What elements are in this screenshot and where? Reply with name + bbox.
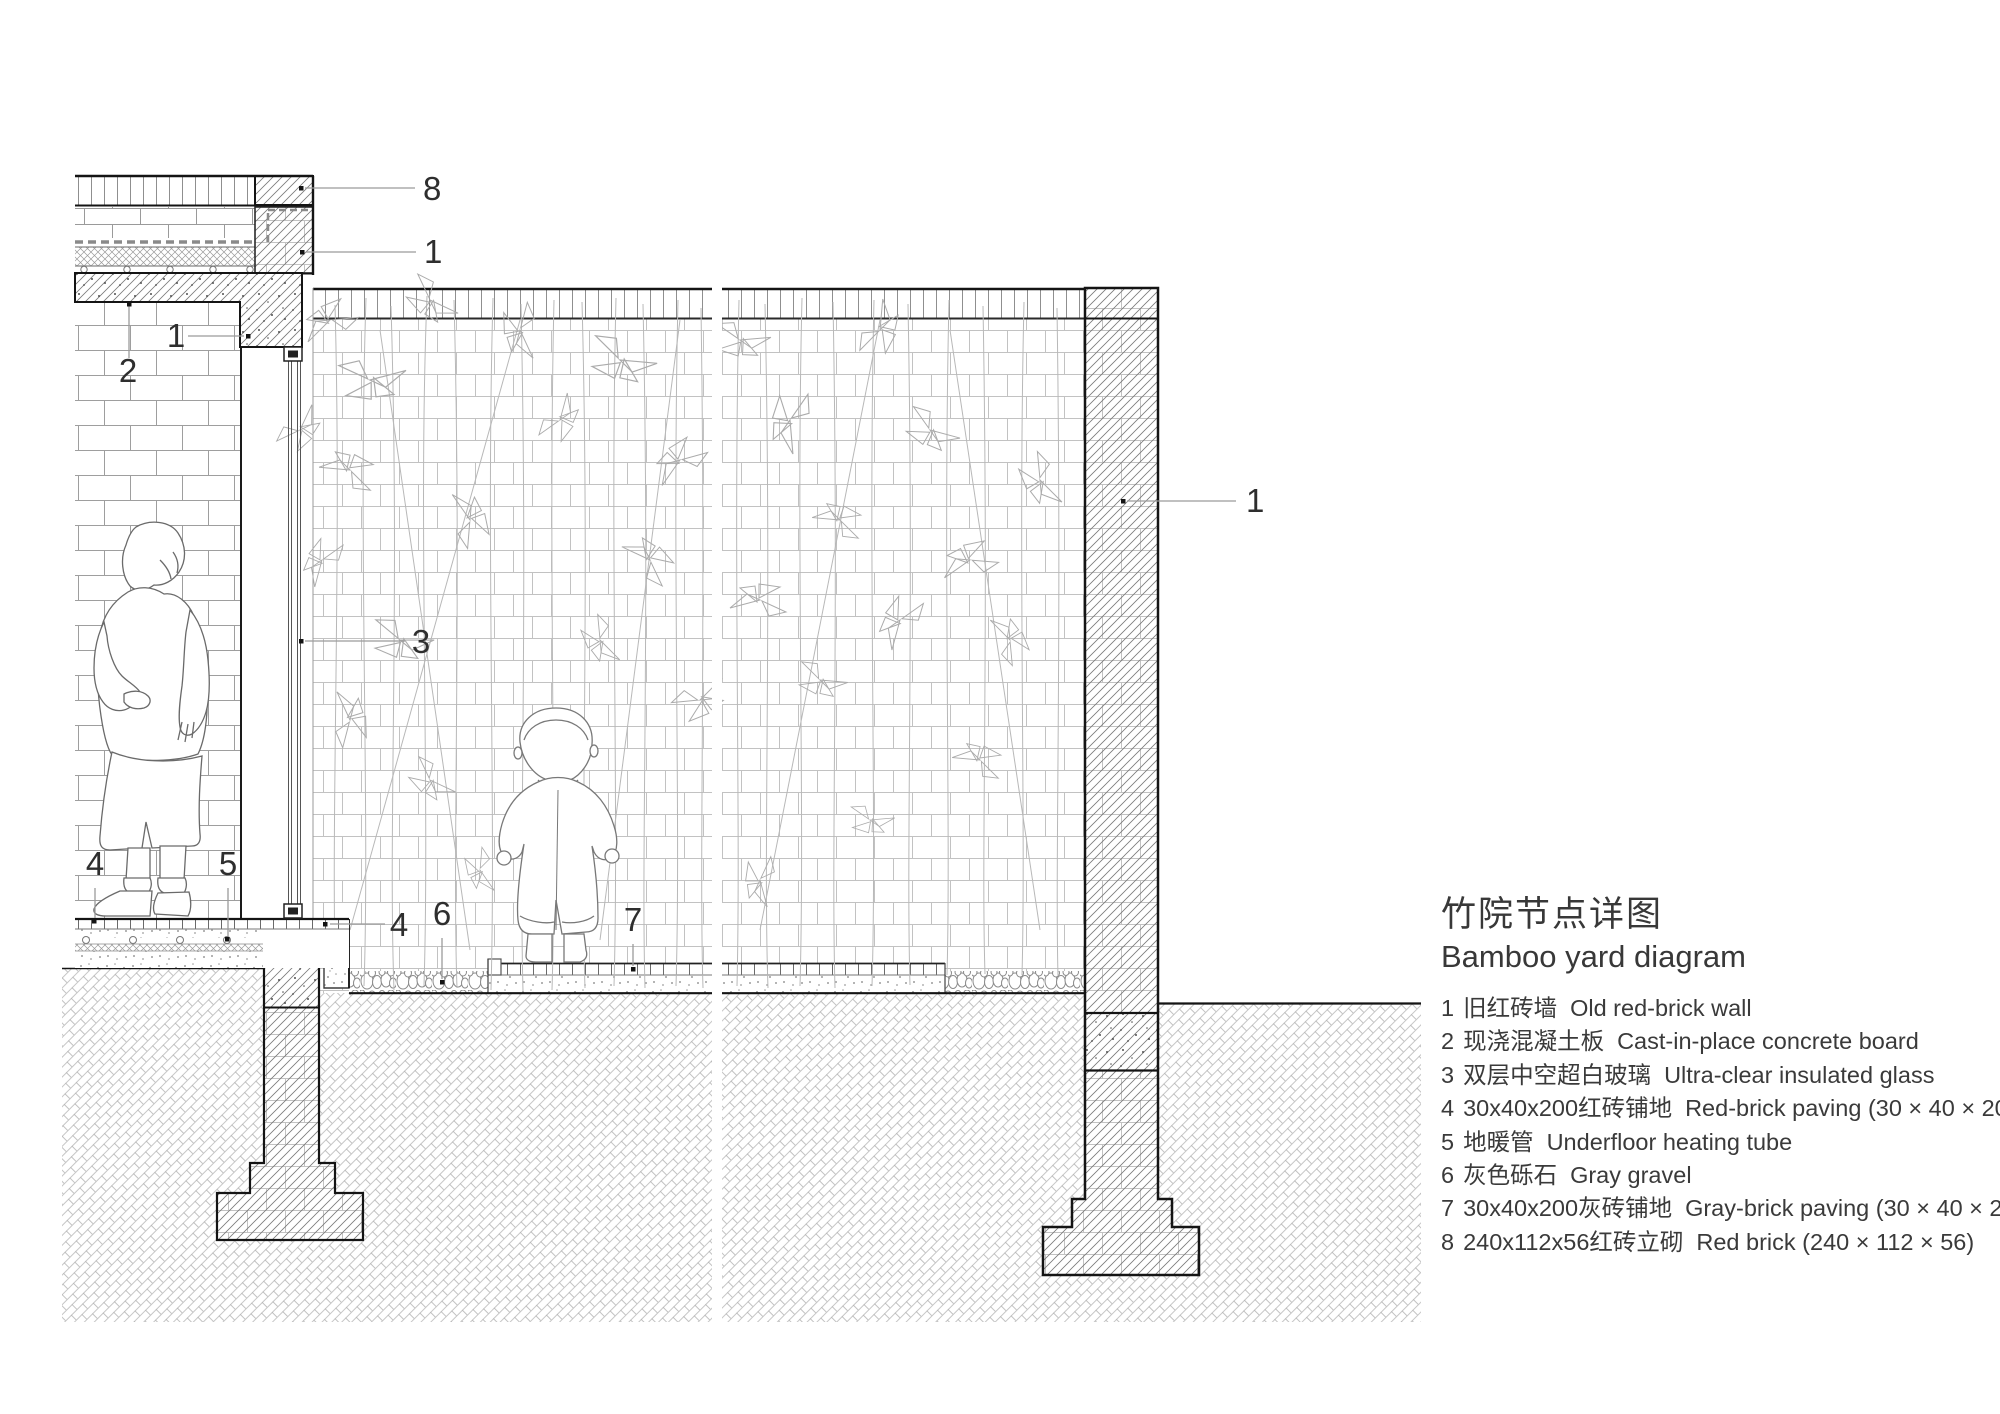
callout-6-label: 6	[433, 895, 451, 932]
legend-item-8: 8240x112x56红砖立砌Red brick (240 × 112 × 56…	[1441, 1226, 2000, 1259]
sheet: 8 1 2 1 3 4 5 4 6 7 1 竹院节点详图 Bamboo yard…	[0, 0, 2000, 1414]
page-title-en: Bamboo yard diagram	[1441, 937, 2000, 977]
legend: 1旧红砖墙Old red-brick wall 2现浇混凝土板Cast-in-p…	[1441, 992, 2000, 1259]
callout-5-label: 5	[219, 845, 237, 882]
callout-1-beam-label: 1	[167, 317, 185, 354]
callout-1-roof-label: 1	[424, 233, 442, 270]
callout-2-label: 2	[119, 352, 137, 389]
sheet-break	[712, 283, 722, 1330]
legend-item-3: 3双层中空超白玻璃Ultra-clear insulated glass	[1441, 1059, 2000, 1092]
glass-unit	[284, 347, 302, 918]
callout-7-label: 7	[624, 901, 642, 938]
callout-4-floor-label: 4	[86, 845, 104, 882]
old-wall-section-top	[255, 207, 313, 273]
interior-floor-assembly	[75, 919, 349, 968]
callout-3-label: 3	[412, 623, 430, 660]
title-block: 竹院节点详图 Bamboo yard diagram 1旧红砖墙Old red-…	[1441, 893, 2000, 1259]
legend-item-2: 2现浇混凝土板Cast-in-place concrete board	[1441, 1025, 2000, 1058]
coping-brick-8	[255, 176, 313, 205]
legend-item-6: 6灰色砾石Gray gravel	[1441, 1159, 2000, 1192]
callout-8-label: 8	[423, 170, 441, 207]
legend-item-5: 5地暖管Underfloor heating tube	[1441, 1126, 2000, 1159]
callout-4-edge-label: 4	[390, 906, 408, 943]
legend-item-1: 1旧红砖墙Old red-brick wall	[1441, 992, 2000, 1025]
page-title-zh: 竹院节点详图	[1441, 893, 2000, 937]
callout-1-wall-label: 1	[1246, 482, 1264, 519]
legend-item-7: 730x40x200灰砖铺地Gray-brick paving (30 × 40…	[1441, 1192, 2000, 1225]
legend-item-4: 430x40x200红砖铺地Red-brick paving (30 × 40 …	[1441, 1092, 2000, 1125]
